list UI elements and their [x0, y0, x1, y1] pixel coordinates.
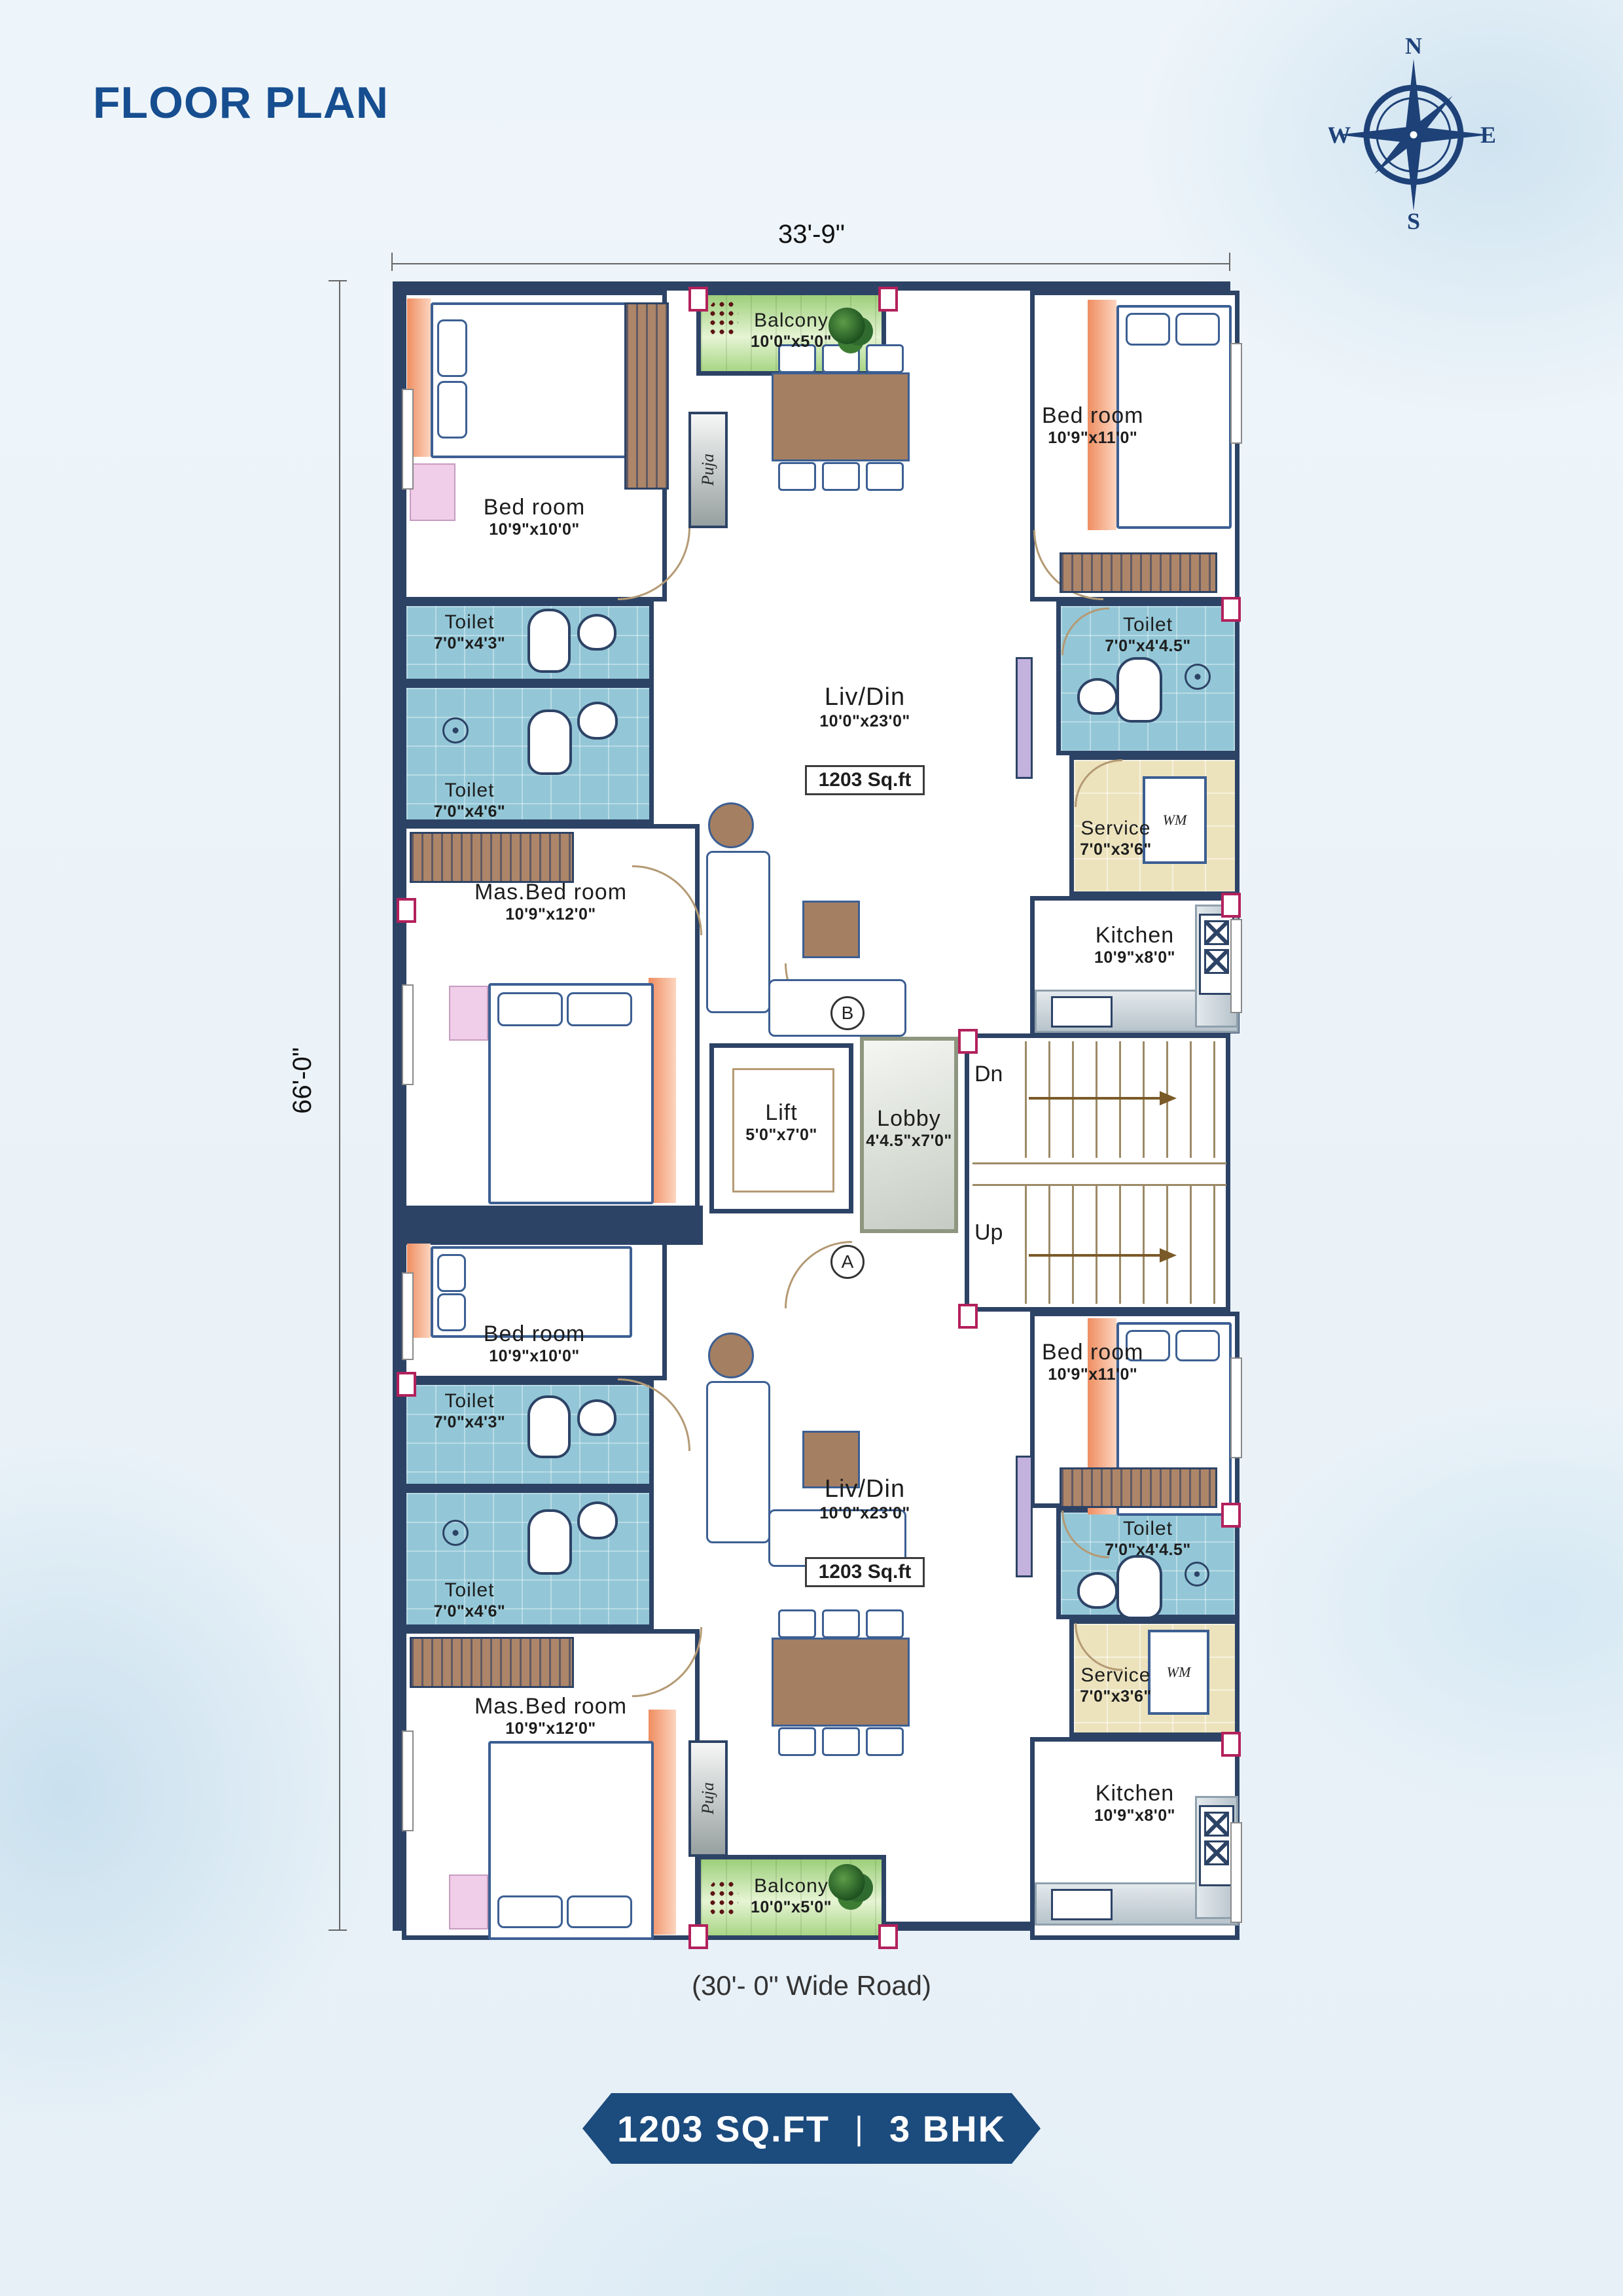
- stair-arrow-head: [1160, 1091, 1177, 1105]
- room-name: Kitchen: [1035, 923, 1235, 948]
- stair-landing: [972, 1162, 1226, 1186]
- stair-flight: [1025, 1041, 1225, 1158]
- room-name: Toilet: [406, 1390, 533, 1413]
- room-name: Liv/Din: [700, 683, 1030, 712]
- chair-icon: [822, 1609, 860, 1638]
- room-name: Toilet: [1061, 1518, 1235, 1541]
- room-name: Service: [1074, 817, 1158, 840]
- room-size: 7'0"x4'6": [406, 802, 533, 821]
- room-name: Lobby: [864, 1106, 954, 1132]
- room-size: 7'0"x4'3": [406, 634, 533, 653]
- room-name: Service: [1074, 1664, 1158, 1687]
- page-title: FLOOR PLAN: [93, 77, 389, 128]
- party-wall: [402, 1206, 703, 1245]
- room-name: Toilet: [406, 611, 533, 634]
- rug-icon: [449, 1874, 488, 1929]
- door-arc: [618, 1378, 690, 1451]
- sofa-icon: [706, 851, 770, 1013]
- window: [1230, 343, 1242, 444]
- dining-table-icon: [772, 1638, 910, 1727]
- compass-north-label: N: [1405, 37, 1422, 59]
- compass-east-label: E: [1480, 122, 1496, 148]
- floor-plan-drawing: Bed room10'9"x10'0" Toilet7'0"x4'3" Toil…: [393, 281, 1230, 1931]
- washbasin-icon: [577, 614, 616, 651]
- dimension-height-line: [339, 281, 340, 1931]
- room-name: Liv/Din: [700, 1475, 1030, 1504]
- pillow-icon: [437, 319, 467, 377]
- stair-arrow-head: [1160, 1248, 1177, 1263]
- room-name: Kitchen: [1035, 1781, 1235, 1806]
- summary-badge: 1203 SQ.FT | 3 BHK: [582, 2093, 1041, 2164]
- column-marker: [1221, 893, 1241, 918]
- room-name: Balcony: [701, 1875, 882, 1898]
- room-name: Lift: [714, 1100, 849, 1126]
- pillow-icon: [1175, 313, 1220, 346]
- rug-icon: [449, 986, 488, 1041]
- room-name: Bed room: [406, 1321, 662, 1347]
- room-name: Toilet: [406, 780, 533, 802]
- window: [402, 1731, 414, 1831]
- room-size: 10'0"x23'0": [700, 712, 1030, 731]
- room-size: 10'0"x23'0": [700, 1504, 1030, 1523]
- pillow-icon: [567, 992, 632, 1026]
- room-name: Bed room: [406, 495, 662, 520]
- room-name: Toilet: [1061, 614, 1235, 637]
- compass-south-label: S: [1407, 208, 1420, 233]
- lobby: Lobby4'4.5"x7'0": [860, 1037, 958, 1233]
- stairs-down-label: Dn: [974, 1062, 1003, 1087]
- shower-icon: [1185, 1562, 1209, 1587]
- room-size: 10'9"x10'0": [406, 520, 662, 539]
- pillow-icon: [1175, 1330, 1220, 1361]
- wc-icon: [1116, 1555, 1162, 1619]
- puja-shelf-top: Puja: [688, 412, 728, 528]
- pillow-icon: [437, 1254, 466, 1292]
- badge-type: 3 BHK: [889, 2108, 1006, 2150]
- stair-arrow: [1029, 1254, 1160, 1257]
- room-size: 10'9"x8'0": [1035, 1806, 1235, 1825]
- column-marker: [1221, 1732, 1241, 1757]
- wm-label: WM: [1167, 1664, 1191, 1681]
- washbasin-icon: [1077, 678, 1118, 715]
- coffee-table-icon: [802, 901, 860, 958]
- dimension-tick: [329, 1929, 347, 1931]
- column-marker: [958, 1304, 978, 1329]
- room-size: 4'4.5"x7'0": [864, 1132, 954, 1151]
- room-name: Toilet: [406, 1579, 533, 1602]
- window: [1230, 1357, 1242, 1458]
- room-size: 10'9"x12'0": [406, 1719, 695, 1738]
- pillow-icon: [567, 1895, 632, 1928]
- dimension-tick: [391, 253, 393, 271]
- room-size: 10'9"x11'0": [1035, 429, 1150, 448]
- washbasin-icon: [577, 702, 618, 740]
- chair-icon: [778, 462, 816, 491]
- room-name: Mas.Bed room: [406, 880, 695, 905]
- chair-icon: [778, 1609, 816, 1638]
- wardrobe-icon: [1060, 1467, 1217, 1508]
- wardrobe-icon: [624, 302, 669, 490]
- road-label: (30'- 0" Wide Road): [393, 1970, 1230, 2001]
- pillow-icon: [437, 381, 467, 439]
- wardrobe-icon: [1060, 552, 1217, 593]
- pillow-icon: [497, 1895, 563, 1928]
- wm-label: WM: [1163, 812, 1187, 829]
- room-size: 5'0"x7'0": [714, 1126, 849, 1145]
- column-marker: [878, 287, 898, 312]
- room-size: 10'9"x11'0": [1035, 1365, 1150, 1384]
- badge-area: 1203 SQ.FT: [617, 2108, 830, 2150]
- wc-icon: [527, 1509, 572, 1575]
- puja-label: Puja: [698, 454, 718, 486]
- sink-icon: [1051, 1889, 1113, 1920]
- washbasin-icon: [577, 1399, 616, 1436]
- room-size: 10'9"x10'0": [406, 1347, 662, 1366]
- wc-icon: [1116, 657, 1162, 723]
- dimension-height-label: 66'-0": [288, 1047, 317, 1114]
- wc-icon: [527, 709, 572, 775]
- area-box: 1203 Sq.ft: [805, 1557, 925, 1587]
- chair-icon: [866, 1727, 904, 1756]
- entry-marker-a: A: [830, 1245, 865, 1279]
- room-size: 7'0"x4'6": [406, 1602, 533, 1621]
- round-table-icon: [708, 1333, 754, 1378]
- dimension-tick: [1229, 253, 1230, 271]
- window: [402, 389, 414, 490]
- compass-west-label: W: [1329, 122, 1351, 148]
- shower-icon: [442, 717, 469, 744]
- dimension-width-line: [393, 263, 1230, 264]
- chair-icon: [822, 462, 860, 491]
- washbasin-icon: [1077, 1572, 1118, 1609]
- column-marker: [878, 1924, 898, 1949]
- dimension-width-label: 33'-9": [393, 220, 1230, 249]
- room-name: Bed room: [1035, 403, 1150, 429]
- room-size: 7'0"x4'4.5": [1061, 1541, 1235, 1560]
- puja-label: Puja: [698, 1782, 718, 1814]
- entry-marker-b: B: [830, 996, 865, 1030]
- stair-arrow: [1029, 1097, 1160, 1100]
- chair-icon: [866, 462, 904, 491]
- puja-shelf-bottom: Puja: [688, 1740, 728, 1857]
- room-name: Mas.Bed room: [406, 1694, 695, 1719]
- chair-icon: [822, 1727, 860, 1756]
- badge-separator: |: [855, 2109, 865, 2147]
- shower-icon: [1185, 664, 1211, 690]
- window: [402, 984, 414, 1085]
- stair-flight: [1025, 1186, 1225, 1304]
- burner-icon: [1204, 1840, 1229, 1865]
- stairs-up-label: Up: [974, 1220, 1003, 1246]
- pillow-icon: [1126, 313, 1170, 346]
- pillow-icon: [497, 992, 563, 1026]
- column-marker: [688, 287, 708, 312]
- room-size: 10'0"x5'0": [701, 1898, 882, 1917]
- room-size: 10'9"x12'0": [406, 905, 695, 924]
- room-size: 7'0"x4'4.5": [1061, 637, 1235, 656]
- floor-plan-page: FLOOR PLAN N S W E 33'-9" 66'-0" Bed roo…: [0, 0, 1623, 2296]
- column-marker: [688, 1924, 708, 1949]
- chair-icon: [778, 1727, 816, 1756]
- window: [1230, 1822, 1242, 1923]
- room-name: Bed room: [1035, 1340, 1150, 1365]
- chair-icon: [866, 1609, 904, 1638]
- room-size: 7'0"x3'6": [1074, 840, 1158, 859]
- sink-icon: [1051, 996, 1113, 1028]
- room-size: 7'0"x4'3": [406, 1413, 533, 1432]
- toilet-top-a: Toilet7'0"x4'3": [402, 601, 654, 683]
- wardrobe-icon: [410, 1637, 574, 1688]
- shower-icon: [442, 1520, 469, 1546]
- compass-rose-icon: N S W E: [1329, 37, 1499, 233]
- room-size: 10'0"x5'0": [701, 332, 882, 351]
- area-box: 1203 Sq.ft: [805, 765, 925, 795]
- dimension-tick: [329, 280, 347, 281]
- room-name: Balcony: [701, 310, 882, 332]
- dining-table-icon: [772, 372, 910, 461]
- washbasin-icon: [577, 1501, 618, 1539]
- wc-icon: [527, 1395, 571, 1458]
- room-size: 10'9"x8'0": [1035, 948, 1235, 967]
- column-marker: [958, 1029, 978, 1054]
- round-table-icon: [708, 802, 754, 848]
- wardrobe-icon: [410, 832, 574, 883]
- wc-icon: [527, 609, 571, 673]
- room-size: 7'0"x3'6": [1074, 1687, 1158, 1706]
